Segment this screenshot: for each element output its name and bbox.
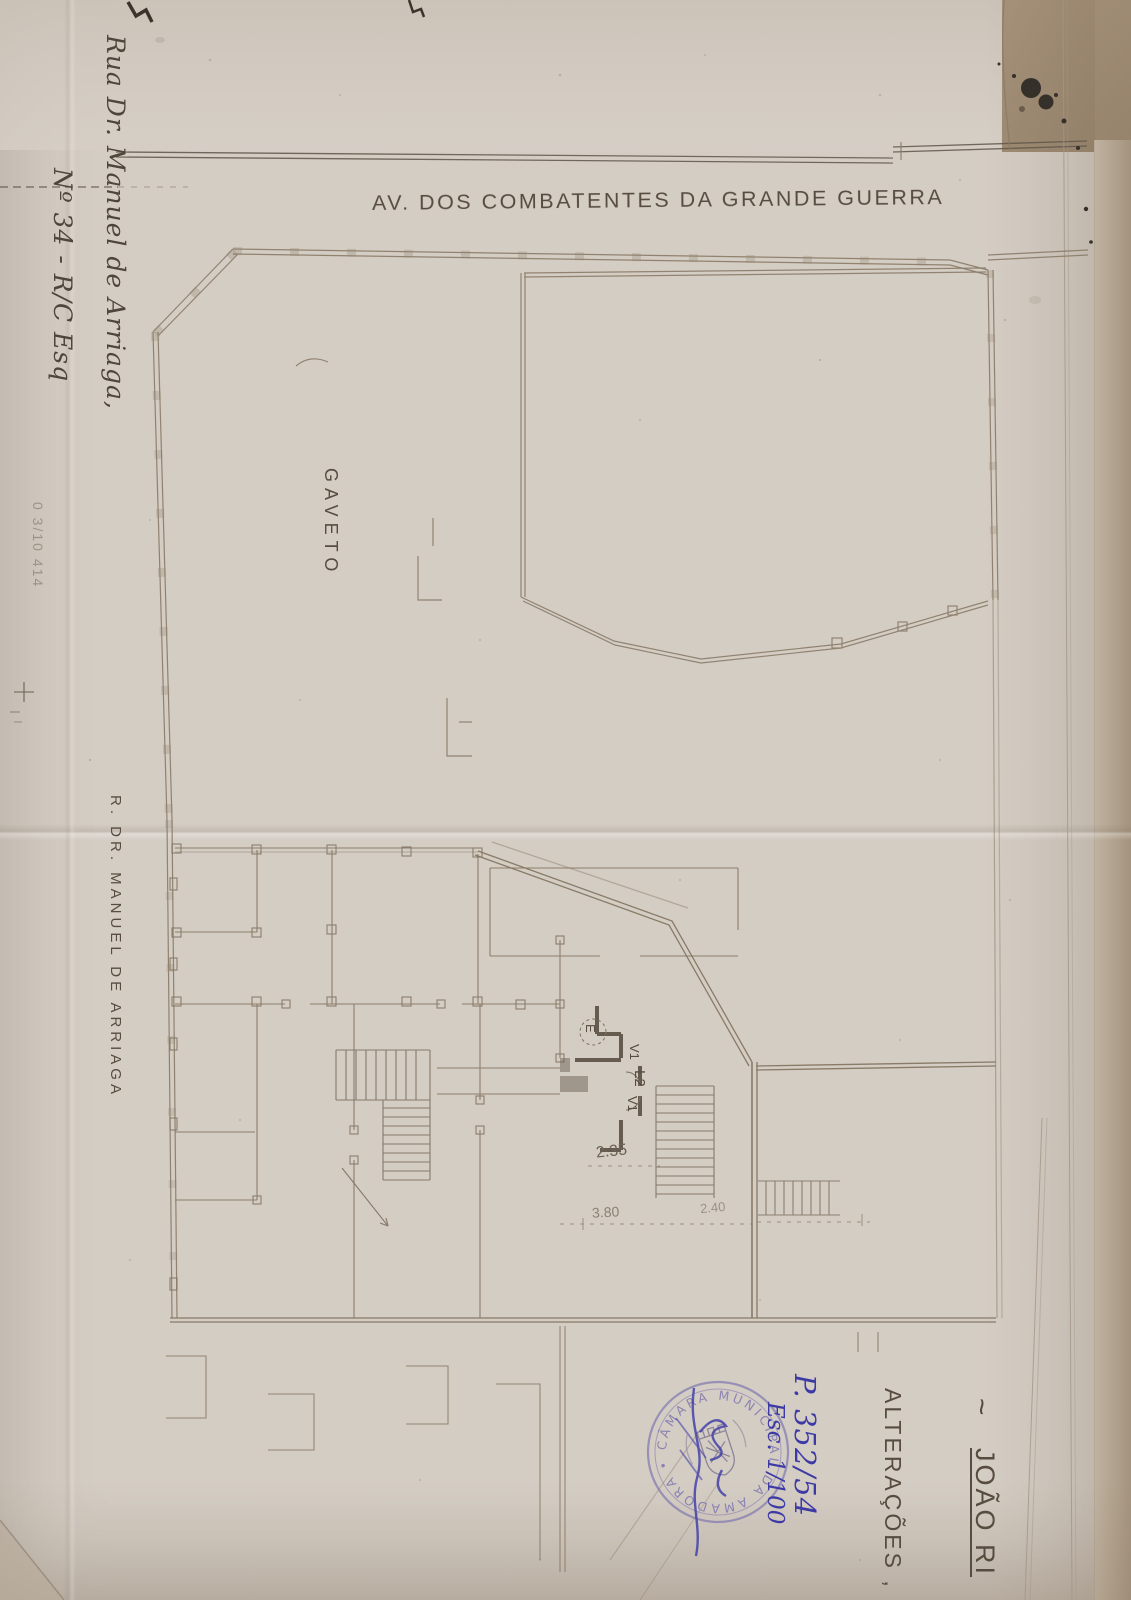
- process-number-note: P. 352/54: [788, 1374, 822, 1517]
- dim-2-35: 2.35: [595, 1141, 628, 1162]
- upper-block-outline: [296, 268, 988, 756]
- edge-ink-mark-top: [409, 0, 424, 17]
- wall-hatch-block: [560, 1076, 588, 1092]
- left-street-label: R. DR. MANUEL DE ARRIAGA: [107, 795, 124, 1098]
- elevator-label: E: [583, 1024, 598, 1033]
- side-staircase: [656, 1086, 714, 1198]
- title-tilde: ~: [964, 1398, 998, 1416]
- scale-note: Esc. 1/100: [762, 1402, 788, 1524]
- ink-blots: [998, 63, 1093, 244]
- handwritten-address-line2: Nº 34 - R/C Esq: [48, 168, 77, 382]
- handwritten-address-line1: Rua Dr. Manuel de Arriaga,: [101, 35, 130, 410]
- label-v1-bottom: V1: [625, 1096, 640, 1112]
- pilasters: [170, 844, 564, 1290]
- page-folds: [1003, 0, 1076, 1600]
- street-stair: [758, 1181, 840, 1215]
- dim-2-40: 2.40: [699, 1199, 726, 1216]
- scanned-plan-page: • CÂMARA MUNICIPAL DA AMADORA AV. DOS CO…: [0, 0, 1131, 1600]
- sheet-border: [0, 141, 1087, 187]
- pencil-date-note: 0 3/10 414: [30, 502, 46, 588]
- dimension-lines: [560, 1166, 870, 1230]
- project-title: JOÃO RI: [969, 1448, 1000, 1577]
- corner-ink-mark-left: [128, 2, 152, 22]
- survey-cross: [10, 682, 34, 722]
- floor-plan-drawing: • CÂMARA MUNICIPAL DA AMADORA: [0, 0, 1131, 1600]
- dim-3-80: 3.80: [592, 1203, 620, 1220]
- gaveto-label: GAVETO: [320, 468, 341, 577]
- door-jamb-block: [560, 1058, 570, 1072]
- alterations-label: ALTERAÇÕES ,: [879, 1388, 906, 1590]
- label-v1-top: V1: [627, 1044, 642, 1060]
- label-l2: L2: [631, 1070, 648, 1087]
- main-staircase: [336, 1050, 430, 1226]
- apartment-walls: [170, 844, 738, 1318]
